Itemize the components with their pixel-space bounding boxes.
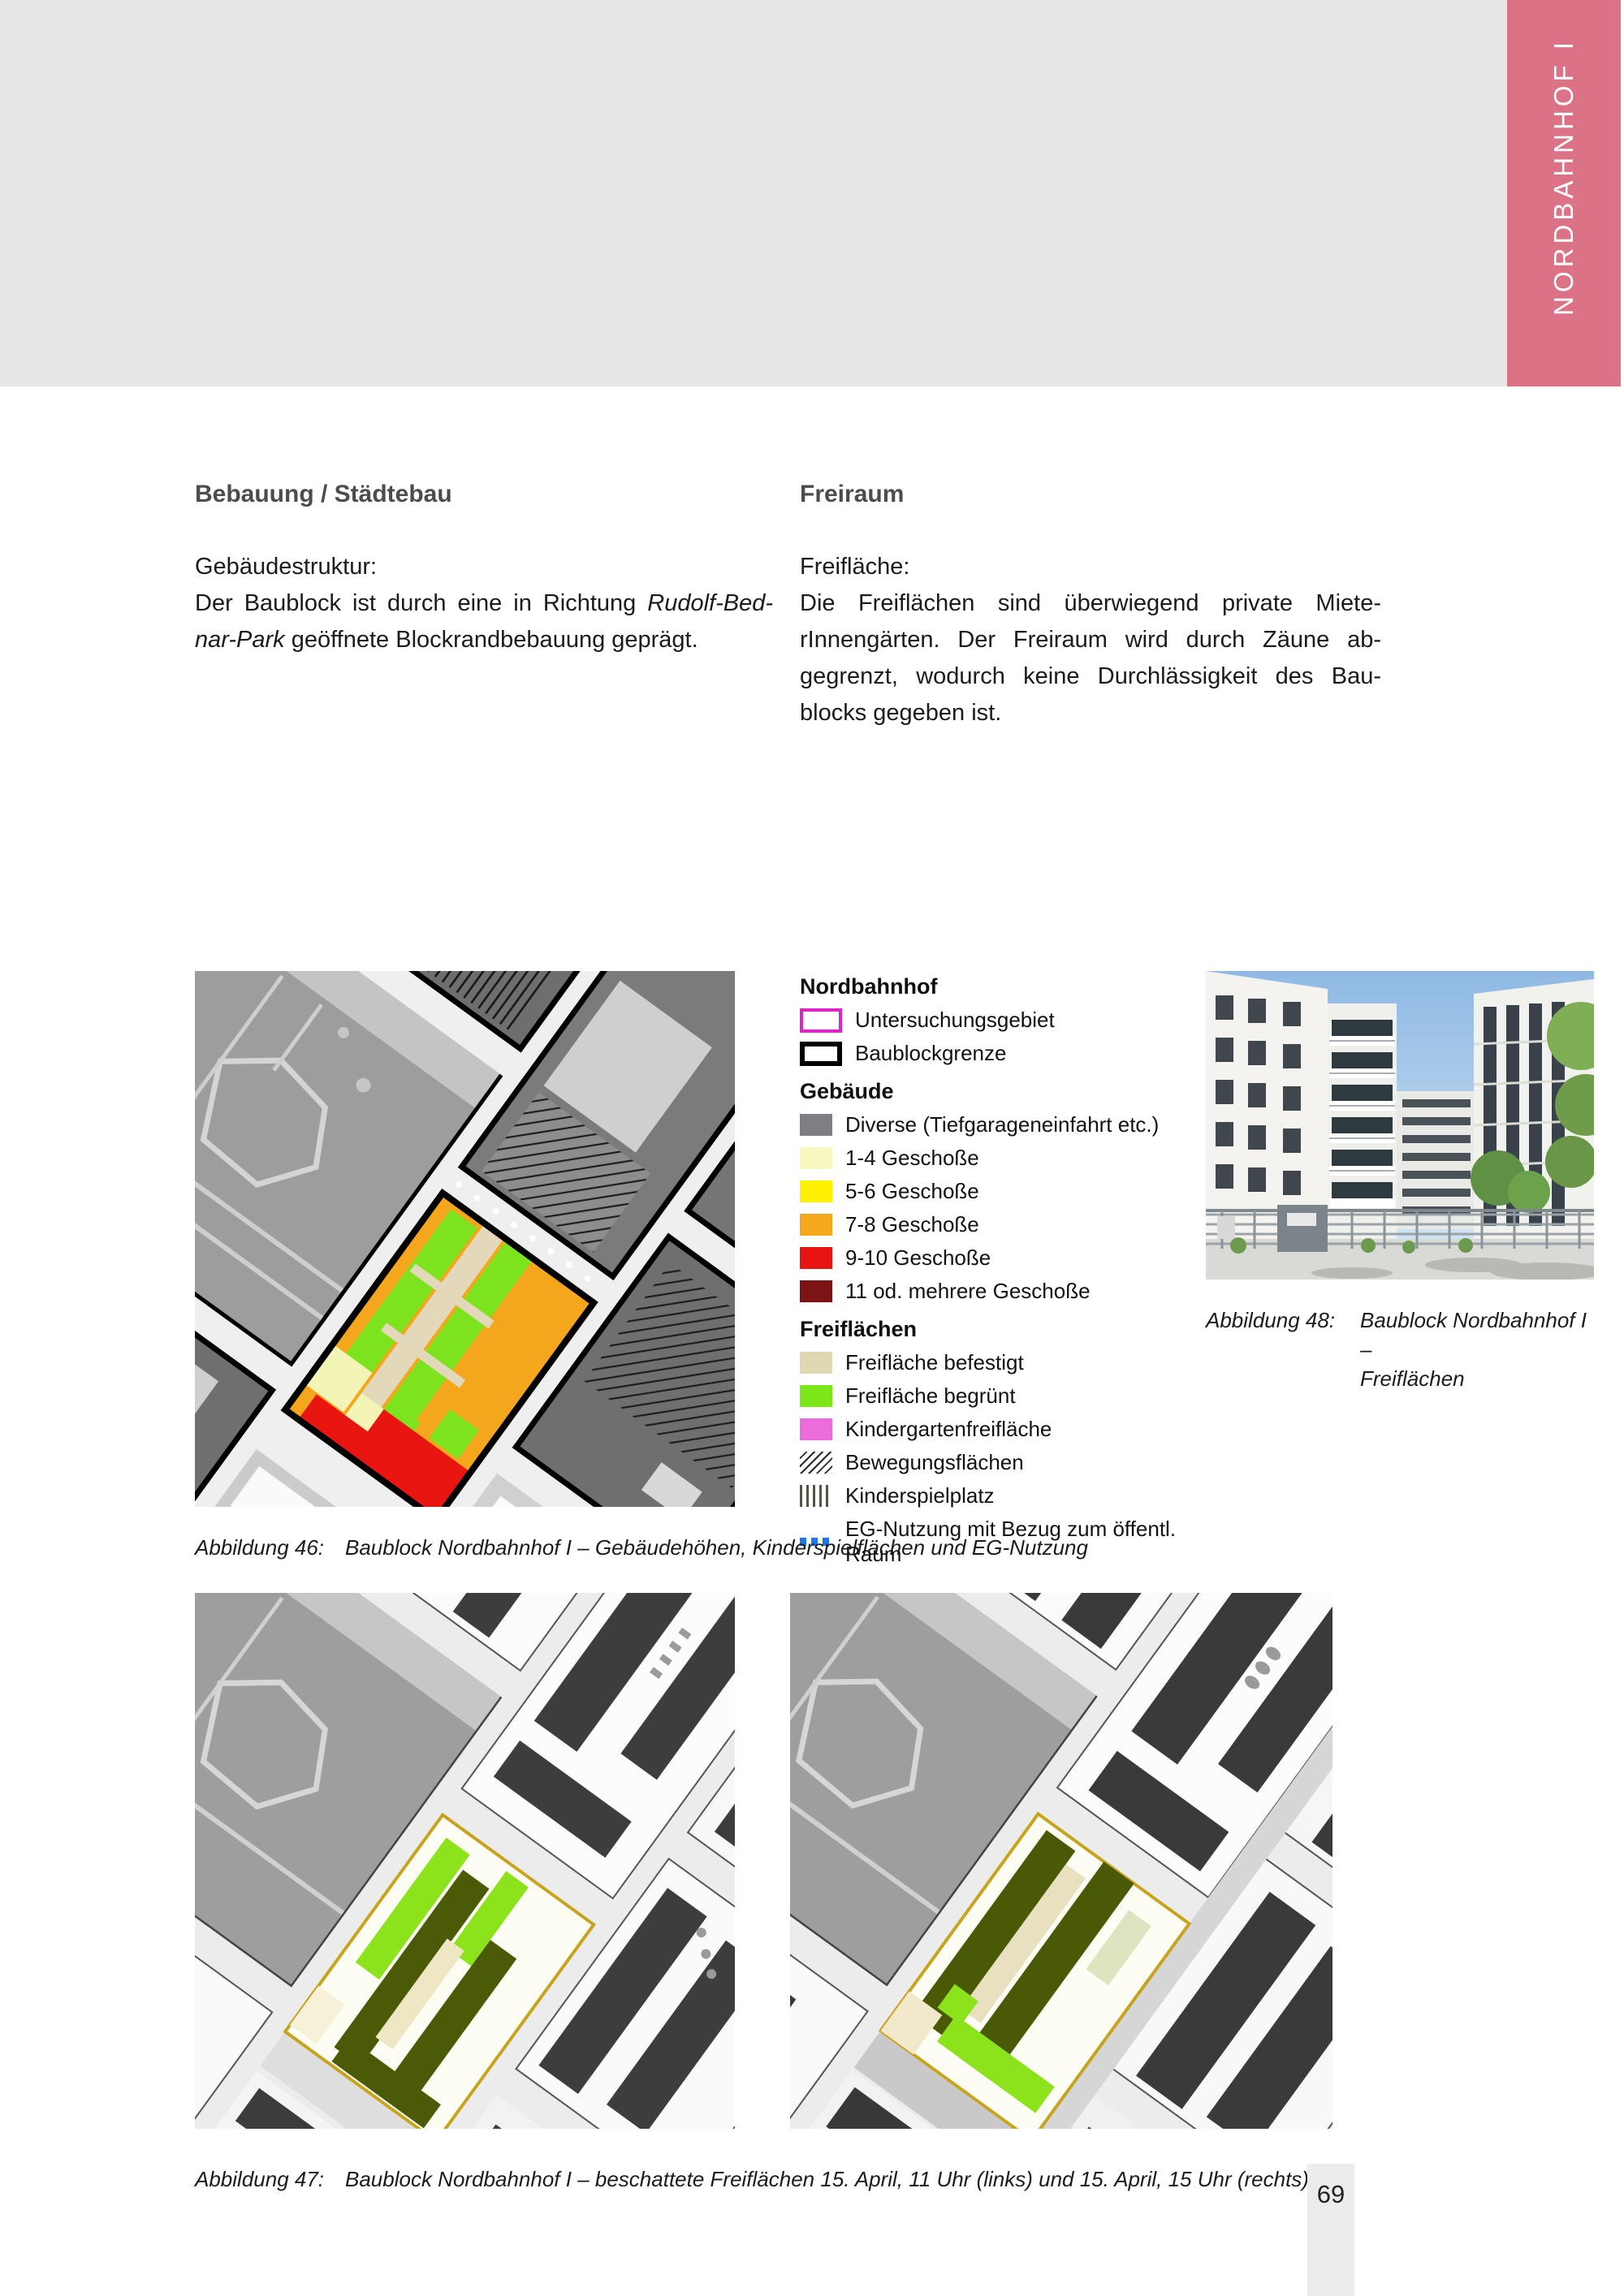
caption-line: Freiflächen <box>1360 1366 1465 1391</box>
legend-row-diverse: Diverse (Tiefgarageneinfahrt etc.) <box>800 1112 1214 1137</box>
kindergarten-swatch <box>800 1418 832 1440</box>
caption-label: Abbildung 47: <box>195 2164 345 2194</box>
column-bebauung: Bebauung / Städtebau Gebäudestruktur: De… <box>195 481 773 658</box>
body-line: blocks gegeben ist. <box>800 695 1381 732</box>
chapter-tab-label: NORDBAHNHOF I <box>1548 38 1579 316</box>
geschosse-11plus-swatch <box>800 1280 832 1302</box>
legend-label: Kinderspielplatz <box>845 1483 995 1508</box>
legend-row-befestigt: Freifläche befestigt <box>800 1350 1214 1375</box>
map-abbildung-47-links <box>195 1593 735 2129</box>
legend-label: Kindergartenfreifläche <box>845 1417 1052 1442</box>
legend-label: Diverse (Tiefgarageneinfahrt etc.) <box>845 1112 1159 1137</box>
caption-text: Baublock Nordbahnhof I – Gebäudehöhen, K… <box>345 1533 1088 1562</box>
geschosse-5-6-swatch <box>800 1180 832 1202</box>
legend-row-1-4: 1-4 Geschoße <box>800 1146 1214 1171</box>
page-number: 69 <box>1317 2180 1345 2209</box>
chapter-tab: NORDBAHNHOF I <box>1507 0 1621 386</box>
heading-freiraum: Freiraum <box>800 481 1381 508</box>
legend-row-11plus: 11 od. mehrere Geschoße <box>800 1279 1214 1304</box>
begruent-swatch <box>800 1385 832 1407</box>
body-text: Der Baublock ist durch eine in Richtung <box>195 590 647 616</box>
map-abbildung-47-rechts <box>790 1593 1332 2129</box>
geschosse-1-4-swatch <box>800 1147 832 1169</box>
bodytext-bebauung: Gebäudestruktur: Der Baublock ist durch … <box>195 549 773 658</box>
legend-label: 9-10 Geschoße <box>845 1245 991 1271</box>
body-text-italic: nar-Park <box>195 627 285 653</box>
heading-bebauung: Bebauung / Städtebau <box>195 481 773 508</box>
kinderspielplatz-swatch <box>800 1485 832 1507</box>
geschosse-9-10-swatch <box>800 1247 832 1269</box>
map-abbildung-46 <box>195 971 735 1507</box>
baublockgrenze-swatch <box>800 1042 842 1066</box>
legend-row-bewegung: Bewegungsflächen <box>800 1450 1214 1475</box>
document-page: NORDBAHNHOF I Bebauung / Städtebau Gebäu… <box>0 0 1624 2296</box>
legend-label: Baublockgrenze <box>855 1041 1006 1066</box>
legend-label: 1-4 Geschoße <box>845 1146 979 1171</box>
caption-abbildung-48: Abbildung 48: Baublock Nordbahnhof I – F… <box>1206 1306 1596 1393</box>
legend-label: Bewegungsflächen <box>845 1450 1024 1475</box>
legend-title: Nordbahnhof <box>800 974 1214 999</box>
body-text-italic: Rudolf-Bed- <box>647 590 773 616</box>
body-line: Die Freiflächen sind überwiegend private… <box>800 585 1381 622</box>
body-line: gegrenzt, wodurch keine Durchlässigkeit … <box>800 658 1381 695</box>
legend-label: Freifläche begrünt <box>845 1383 1016 1409</box>
caption-label: Abbildung 48: <box>1206 1306 1360 1393</box>
caption-abbildung-47: Abbildung 47: Baublock Nordbahnhof I – b… <box>195 2164 1494 2194</box>
legend-row-untersuchungsgebiet: Untersuchungsgebiet <box>800 1008 1214 1033</box>
body-line: nar-Park geöffnete Blockrandbebauung gep… <box>195 622 773 658</box>
diverse-swatch <box>800 1114 832 1136</box>
bodytext-freiraum: Freifläche: Die Freiflächen sind überwie… <box>800 549 1381 732</box>
legend-row-kindergarten: Kindergartenfreifläche <box>800 1417 1214 1442</box>
legend-label: Freifläche befestigt <box>845 1350 1024 1375</box>
body-text: geöffnete Blockrandbebauung geprägt. <box>285 627 698 653</box>
lead-freiflaeche: Freifläche: <box>800 549 1381 585</box>
bewegungsflaechen-swatch <box>800 1452 832 1474</box>
legend-heading-freiflaechen: Freiflächen <box>800 1317 1214 1342</box>
legend-row-7-8: 7-8 Geschoße <box>800 1212 1214 1237</box>
lead-gebaeudestruktur: Gebäudestruktur: <box>195 549 773 585</box>
photo-abbildung-48 <box>1206 971 1594 1280</box>
caption-label: Abbildung 46: <box>195 1533 345 1562</box>
legend-row-kinderspielplatz: Kinderspielplatz <box>800 1483 1214 1508</box>
untersuchungsgebiet-swatch <box>800 1008 842 1033</box>
legend-label: 7-8 Geschoße <box>845 1212 979 1237</box>
header-band <box>0 0 1507 386</box>
geschosse-7-8-swatch <box>800 1214 832 1236</box>
legend-row-begruent: Freifläche begrünt <box>800 1383 1214 1409</box>
legend-label: 5-6 Geschoße <box>845 1179 979 1204</box>
legend-label: Untersuchungsgebiet <box>855 1008 1055 1033</box>
body-line: Der Baublock ist durch eine in Richtung … <box>195 585 773 622</box>
legend-label: 11 od. mehrere Geschoße <box>845 1279 1091 1304</box>
caption-abbildung-46: Abbildung 46: Baublock Nordbahnhof I – G… <box>195 1533 1332 1562</box>
caption-text: Baublock Nordbahnhof I – beschattete Fre… <box>345 2164 1309 2194</box>
legend-row-9-10: 9-10 Geschoße <box>800 1245 1214 1271</box>
page-number-strip: 69 <box>1307 2164 1354 2296</box>
caption-text: Baublock Nordbahnhof I – Freiflächen <box>1360 1306 1596 1393</box>
body-line: rInnengärten. Der Freiraum wird durch Zä… <box>800 622 1381 658</box>
caption-line: Baublock Nordbahnhof I – <box>1360 1308 1587 1362</box>
map-legend: Nordbahnhof Untersuchungsgebiet Baublock… <box>800 974 1214 1575</box>
legend-heading-gebaeude: Gebäude <box>800 1079 1214 1104</box>
legend-row-baublockgrenze: Baublockgrenze <box>800 1041 1214 1066</box>
befestigt-swatch <box>800 1352 832 1374</box>
legend-row-5-6: 5-6 Geschoße <box>800 1179 1214 1204</box>
column-freiraum: Freiraum Freifläche: Die Freiflächen sin… <box>800 481 1381 732</box>
